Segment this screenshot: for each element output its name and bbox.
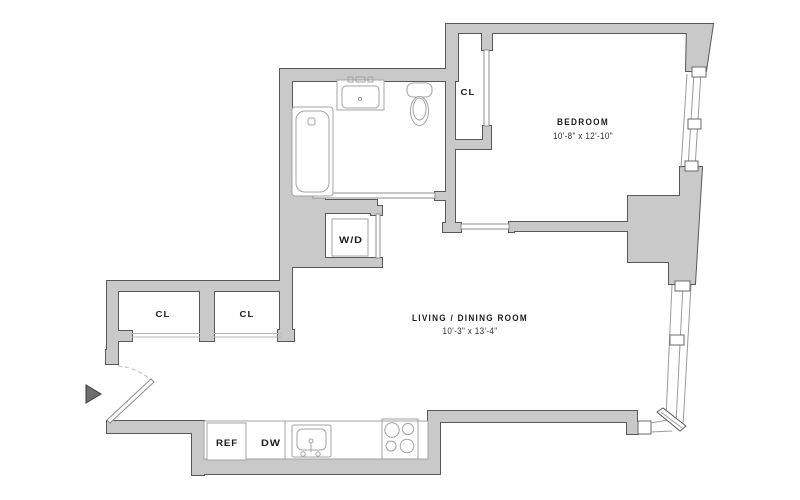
bedroom-closet-label: CL [461, 87, 476, 97]
hall-closet-left-label: CL [156, 309, 171, 319]
floor-plan: BEDROOM 10'-8" x 12'-10" LIVING / DINING… [0, 0, 800, 500]
bedroom-dims: 10'-8" x 12'-10" [553, 131, 613, 141]
kitchen-sink [292, 425, 331, 457]
washer-dryer-label: W/D [339, 235, 363, 245]
floor-plan-drawing: BEDROOM 10'-8" x 12'-10" LIVING / DINING… [0, 0, 800, 500]
window-sill-box [638, 421, 651, 434]
bathtub [292, 107, 333, 196]
bathroom-sink [337, 77, 384, 110]
dishwasher-label: DW [261, 438, 281, 448]
bedroom-label: BEDROOM [557, 117, 609, 128]
entry-arrow-icon [86, 385, 101, 403]
living-window [638, 281, 691, 434]
window-corner-cap [657, 408, 686, 431]
refrigerator-label: REF [216, 438, 238, 448]
toilet [407, 83, 432, 126]
washer-dryer-door [376, 214, 380, 258]
entry-door [107, 366, 154, 423]
bedroom-window [681, 67, 706, 171]
bedroom-door [461, 224, 509, 229]
hall-closet-right-label: CL [240, 309, 255, 319]
labels: BEDROOM 10'-8" x 12'-10" LIVING / DINING… [156, 87, 614, 448]
living-room-label: LIVING / DINING ROOM [412, 313, 528, 324]
bedroom-closet-door [484, 50, 489, 126]
living-room-dims: 10'-3" x 13'-4" [443, 326, 498, 336]
